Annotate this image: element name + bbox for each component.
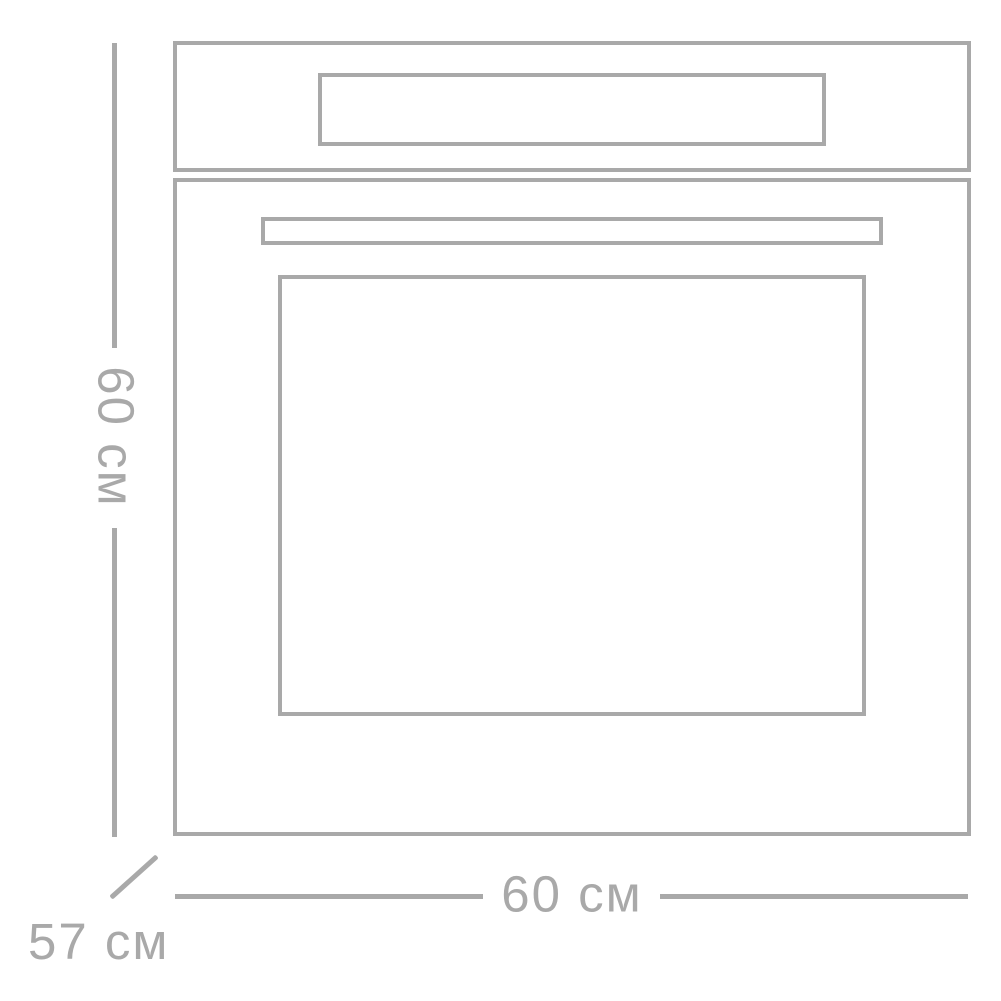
height-dimension-line-upper <box>112 43 117 348</box>
width-dimension-line-right <box>660 894 968 899</box>
height-dimension-line-lower <box>112 528 117 837</box>
oven-display-outline <box>318 73 826 146</box>
depth-dimension-label: 57 см <box>28 916 169 967</box>
oven-dimensions-diagram: 60 см 60 см 57 см <box>0 0 1001 1001</box>
width-dimension-line-left <box>175 894 483 899</box>
depth-dimension-line <box>109 854 158 899</box>
oven-door-window-outline <box>278 275 866 716</box>
width-dimension-label: 60 см <box>501 869 642 920</box>
height-dimension-label: 60 см <box>91 366 142 507</box>
oven-door-handle-outline <box>261 217 883 245</box>
